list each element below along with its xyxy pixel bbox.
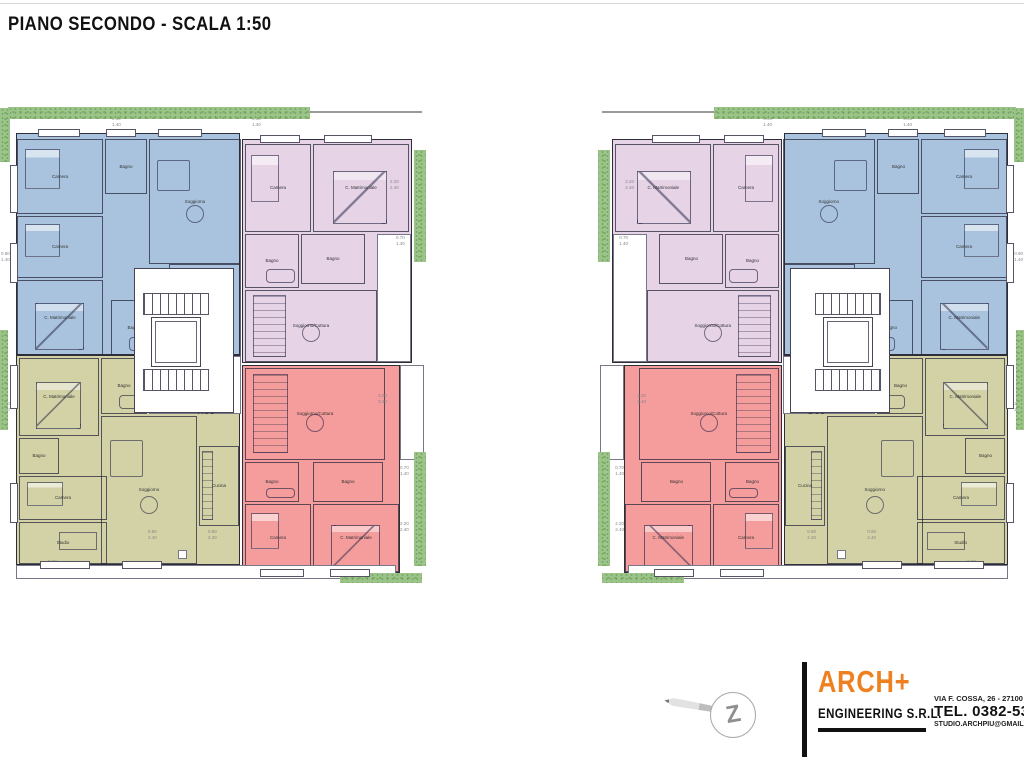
room-matrimoniale: C. Matrimoniale xyxy=(313,504,399,572)
brand-subtitle: ENGINEERING S.R.L. xyxy=(818,706,942,721)
dimension: 2.20 2.40 xyxy=(390,179,399,190)
room-camera: Camera xyxy=(921,216,1007,278)
dimension: 0.70 1.40 xyxy=(400,465,409,476)
room-bagno: Bagno xyxy=(877,139,919,194)
hedge xyxy=(714,107,1016,119)
top-border-line xyxy=(0,3,1024,4)
stairs xyxy=(815,293,881,315)
room-bagno: Bagno xyxy=(301,234,365,284)
room-camera: Camera xyxy=(245,504,311,572)
room-soggiorno: Soggiorno xyxy=(149,139,241,264)
room-camera: Camera xyxy=(921,139,1007,214)
boundary-line xyxy=(602,111,714,113)
room-bagno: Bagno xyxy=(245,234,299,288)
window xyxy=(720,569,764,577)
dimension: 0.90 2.40 xyxy=(867,529,876,540)
stairs xyxy=(143,293,209,315)
room-bagno: Bagno xyxy=(245,462,299,502)
balcony xyxy=(377,234,411,362)
boundary-line xyxy=(310,111,422,113)
room-bagno: Bagno xyxy=(965,438,1005,474)
room-camera: Camera xyxy=(713,504,779,572)
apartment-b11: Camera C. Matrimoniale Bagno Bagno Soggi… xyxy=(612,139,782,363)
room-bagno: Bagno xyxy=(725,234,779,288)
hedge xyxy=(8,107,310,119)
hedge xyxy=(0,330,8,430)
window xyxy=(1006,165,1014,213)
room-bagno: Bagno xyxy=(105,139,147,194)
dimension: 0.90 2.40 xyxy=(148,529,157,540)
brand-name: ARCH+ xyxy=(818,664,910,700)
apartment-a12: Soggiorno/Cottura Bagno Bagno Camera C. … xyxy=(242,365,400,573)
window xyxy=(888,129,918,137)
elevator xyxy=(151,317,201,367)
elevator xyxy=(823,317,873,367)
room-matrimoniale: C. Matrimoniale xyxy=(19,358,99,436)
dimension: 3.20 3.40 xyxy=(378,393,387,404)
dimension: 0.90 1.40 xyxy=(1014,251,1023,262)
dimension: 0.90 2.40 xyxy=(807,529,816,540)
window xyxy=(10,165,18,213)
window xyxy=(106,129,136,137)
building-left: Camera Bagno Soggiorno Cucina Camera C. … xyxy=(10,103,422,585)
balcony xyxy=(613,234,647,362)
window xyxy=(1006,365,1014,409)
stairs xyxy=(143,369,209,391)
window xyxy=(122,561,162,569)
hedge xyxy=(414,452,426,566)
room-bagno: Bagno xyxy=(725,462,779,502)
room-matrimoniale: C. Matrimoniale xyxy=(17,280,103,356)
stairs xyxy=(815,369,881,391)
balcony xyxy=(400,365,424,460)
window xyxy=(934,561,984,569)
room-cucina: Cucina xyxy=(199,446,239,526)
room-bagno: Bagno xyxy=(19,438,59,474)
column xyxy=(178,550,187,559)
company-email: STUDIO.ARCHPIU@GMAIL. xyxy=(934,721,1024,728)
apartment-a11: Camera C. Matrimoniale Bagno Bagno Soggi… xyxy=(242,139,412,363)
room-camera: Camera xyxy=(713,144,779,232)
hedge xyxy=(1014,108,1024,162)
window xyxy=(10,243,18,283)
room-matrimoniale: C. Matrimoniale xyxy=(625,504,711,572)
window xyxy=(40,561,90,569)
divider-bar xyxy=(802,662,807,757)
stairwell xyxy=(134,268,234,413)
company-block: Z ARCH+ ENGINEERING S.R.L. VIA F. COSSA,… xyxy=(650,650,1024,768)
window xyxy=(862,561,902,569)
room-studio: Studio xyxy=(917,522,1005,564)
room-soggiorno-cottura: Soggiorno/Cottura xyxy=(647,290,779,362)
dimension: 3.20 3.40 xyxy=(637,393,646,404)
dimension: 0.90 2.40 xyxy=(208,529,217,540)
dimension: 0.70 1.40 xyxy=(396,235,405,246)
room-bagno: Bagno xyxy=(313,462,383,502)
apartment-b12: Soggiorno/Cottura Bagno Bagno Camera C. … xyxy=(624,365,782,573)
dimension: 2.20 2.40 xyxy=(400,521,409,532)
dimension: 2.20 2.40 xyxy=(625,179,634,190)
company-phone: TEL. 0382-5304 xyxy=(934,703,1024,720)
room-camera: Camera xyxy=(245,144,311,232)
window xyxy=(654,569,694,577)
room-bagno: Bagno xyxy=(659,234,723,284)
window xyxy=(1006,243,1014,283)
window xyxy=(652,135,700,143)
room-camera: Camera xyxy=(17,216,103,278)
window xyxy=(724,135,764,143)
room-cucina: Cucina xyxy=(785,446,825,526)
dimension: 2.20 2.40 xyxy=(615,521,624,532)
window xyxy=(158,129,202,137)
window xyxy=(38,129,80,137)
hedge xyxy=(0,108,10,162)
column xyxy=(837,550,846,559)
room-camera: Camera xyxy=(917,476,1005,520)
room-bagno: Bagno xyxy=(641,462,711,502)
room-soggiorno-cottura: Soggiorno/Cottura xyxy=(639,368,779,460)
dimension: 0.70 1.40 xyxy=(619,235,628,246)
window xyxy=(944,129,986,137)
z-logo-icon: Z xyxy=(723,700,742,730)
hedge xyxy=(1016,330,1024,430)
window xyxy=(330,569,370,577)
room-soggiorno-cottura: Soggiorno/Cottura xyxy=(245,368,385,460)
company-logo: Z xyxy=(710,692,756,738)
window xyxy=(1006,483,1014,523)
room-matrimoniale: C. Matrimoniale xyxy=(925,358,1005,436)
window xyxy=(822,129,866,137)
hedge xyxy=(414,150,426,262)
window xyxy=(260,569,304,577)
room-soggiorno: Soggiorno xyxy=(827,416,923,564)
balcony xyxy=(600,365,624,460)
dimension: 0.90 1.40 xyxy=(1,251,10,262)
company-address: VIA F. COSSA, 26 - 27100 P xyxy=(934,694,1024,703)
mirrored-plan: Camera Bagno Soggiorno Cucina Camera C. … xyxy=(602,103,1014,585)
stairwell xyxy=(790,268,890,413)
room-camera: Camera xyxy=(19,476,107,520)
brand-underline xyxy=(818,728,926,732)
building-right: Camera Bagno Soggiorno Cucina Camera C. … xyxy=(602,103,1014,585)
room-camera: Camera xyxy=(17,139,103,214)
hedge xyxy=(598,452,610,566)
hedge xyxy=(598,150,610,262)
room-soggiorno: Soggiorno xyxy=(101,416,197,564)
room-matrimoniale: C. Matrimoniale xyxy=(921,280,1007,356)
room-studio: Studio xyxy=(19,522,107,564)
room-soggiorno-cottura: Soggiorno/Cottura xyxy=(245,290,377,362)
page-title: PIANO SECONDO - SCALA 1:50 xyxy=(8,14,272,36)
window xyxy=(260,135,300,143)
room-soggiorno: Soggiorno xyxy=(783,139,875,264)
window xyxy=(324,135,372,143)
dimension: 0.70 1.40 xyxy=(615,465,624,476)
window xyxy=(10,483,18,523)
window xyxy=(10,365,18,409)
